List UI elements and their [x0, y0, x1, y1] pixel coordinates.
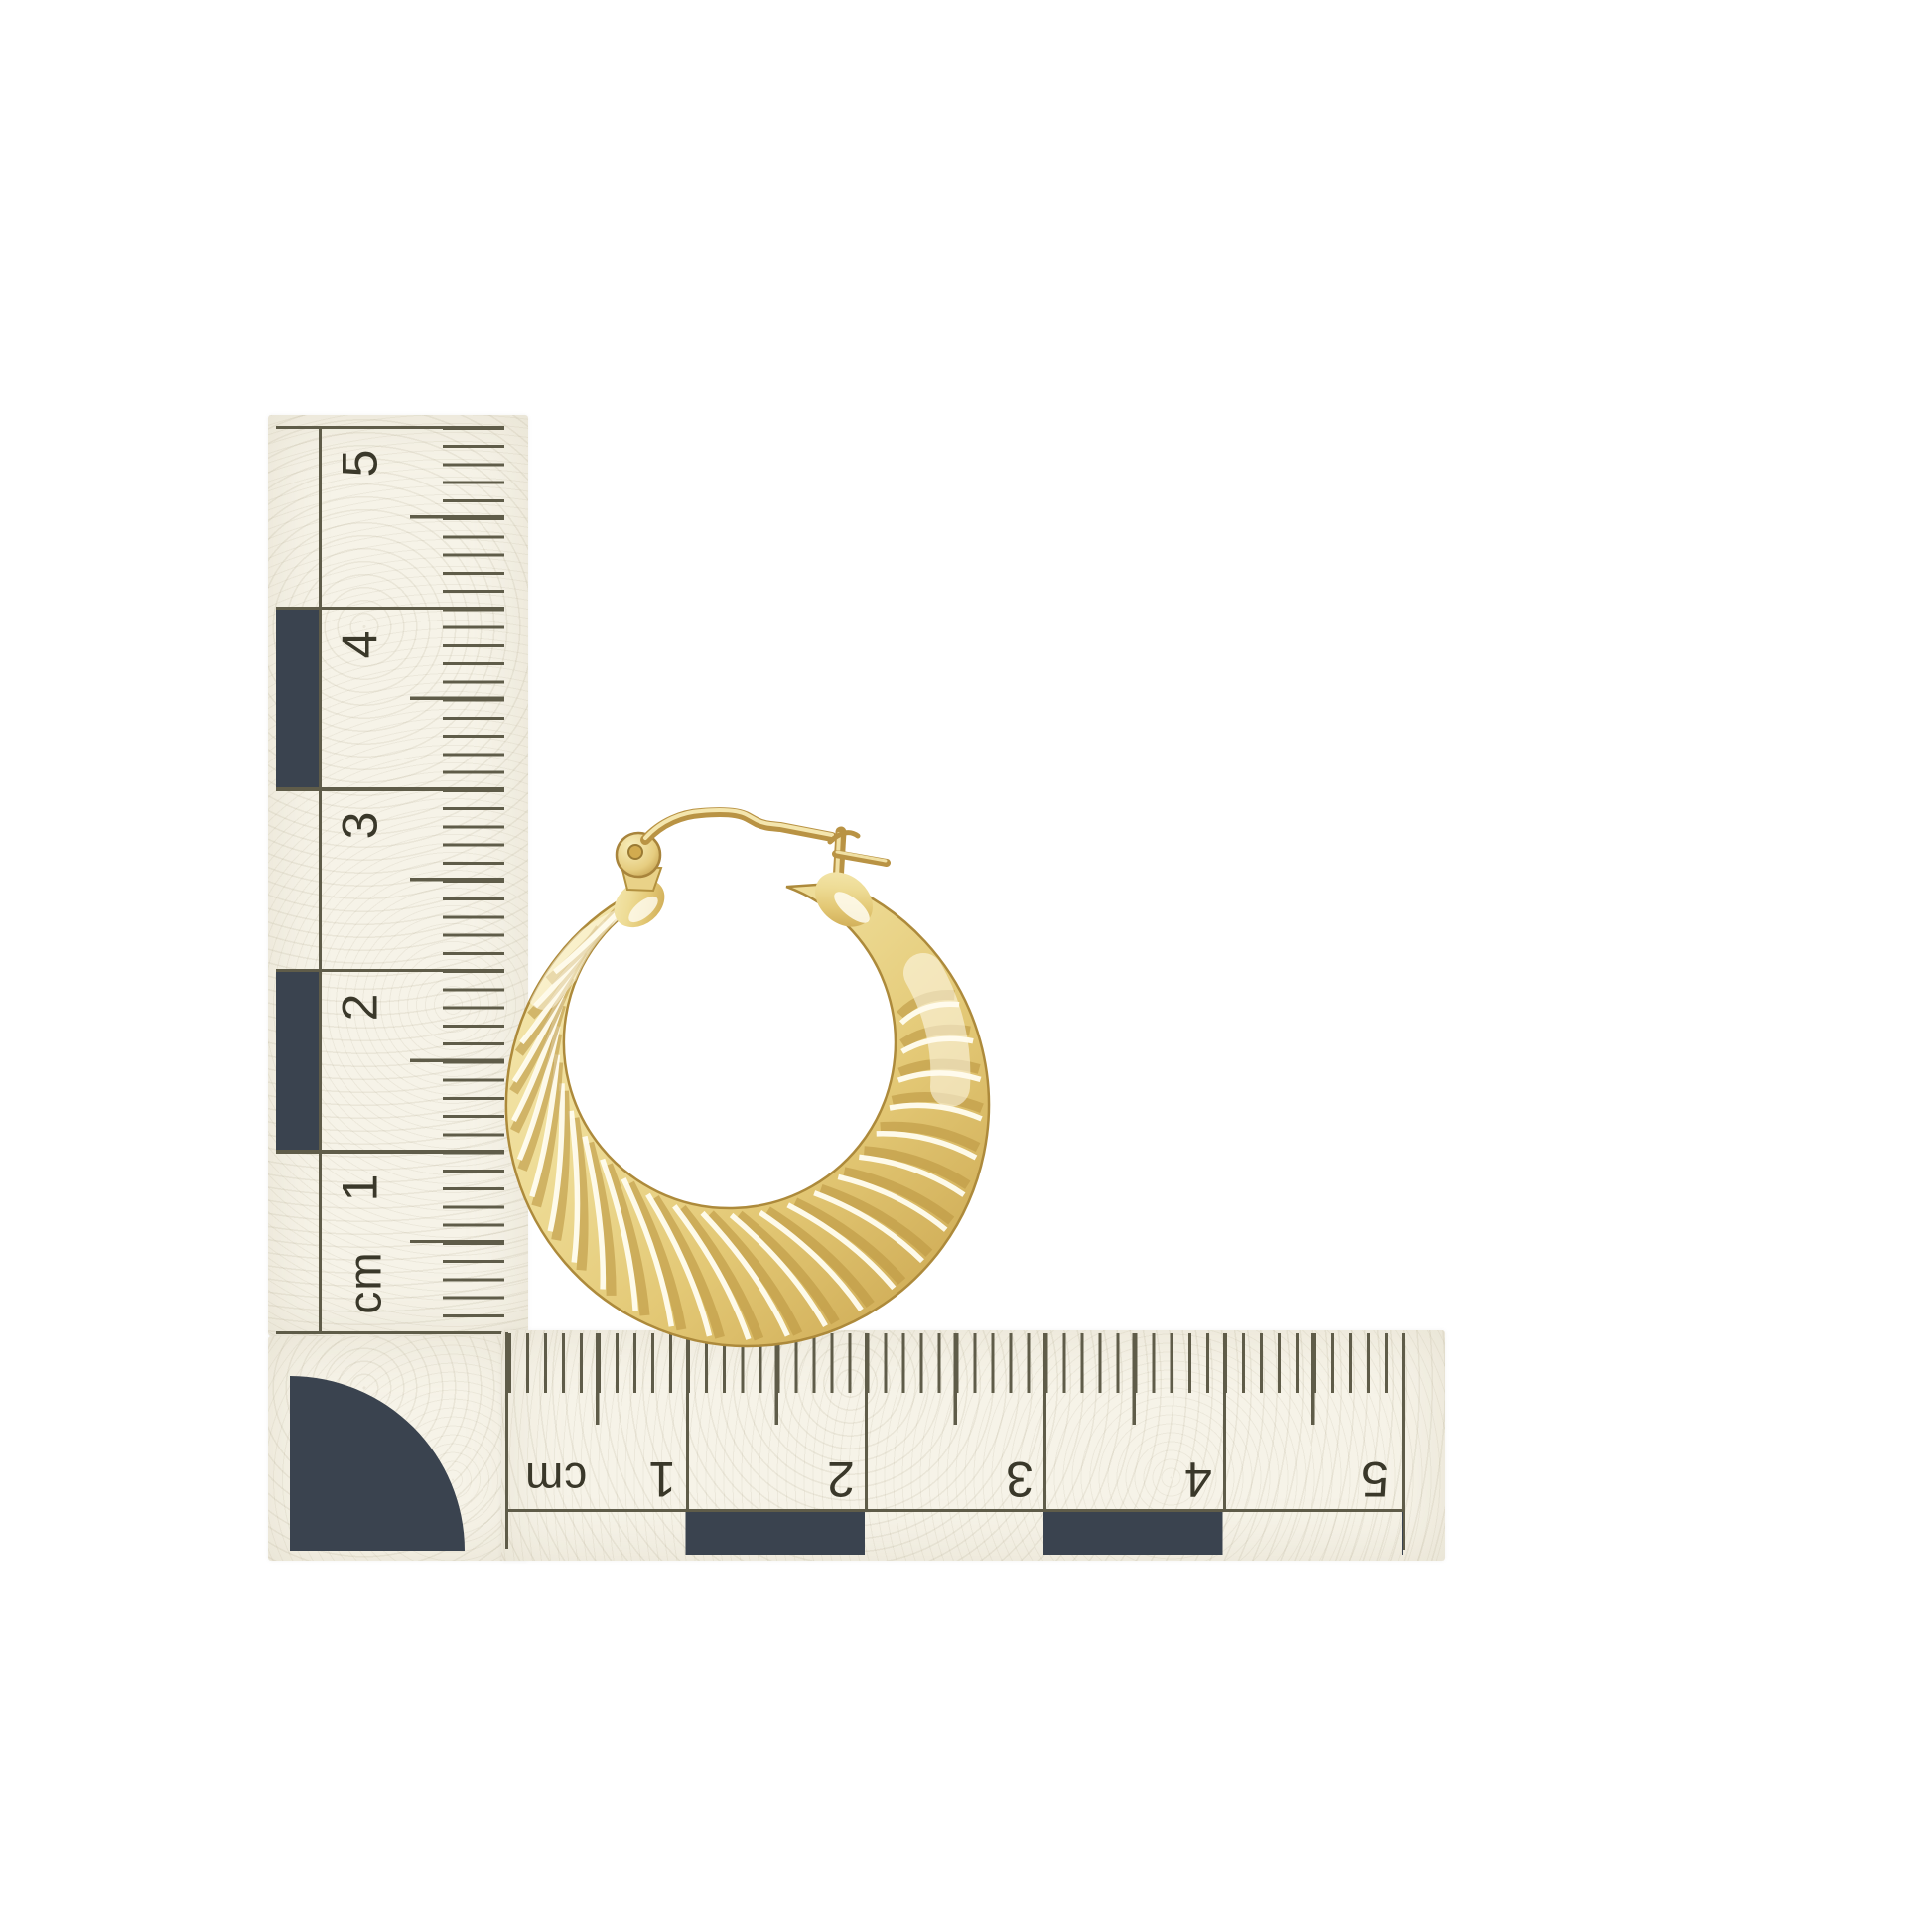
hinge-rivet — [628, 845, 642, 859]
earring — [0, 0, 1932, 1932]
photo-stage: 5 4 3 2 1 cm cm 1 2 3 4 5 — [0, 0, 1932, 1932]
